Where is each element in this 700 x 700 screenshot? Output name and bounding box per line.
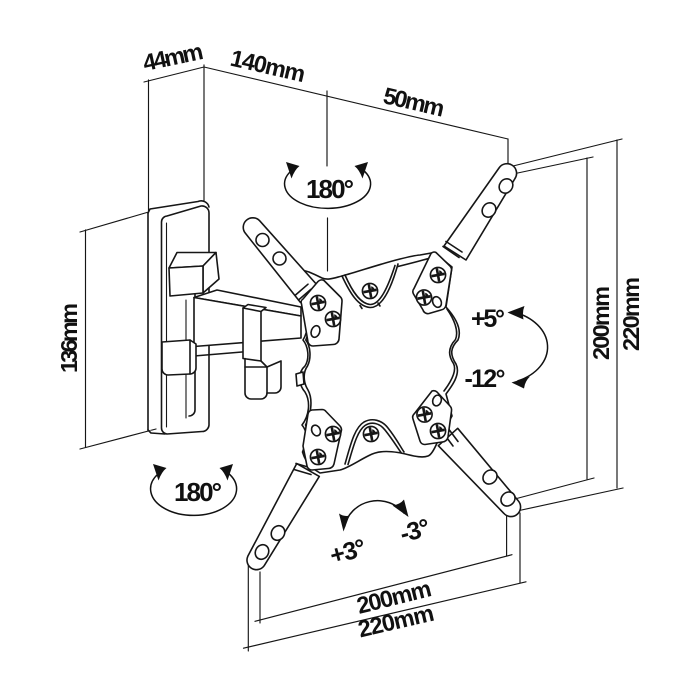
svg-text:+3°: +3°	[327, 534, 369, 570]
svg-text:200mm: 200mm	[588, 286, 614, 360]
svg-text:-12°: -12°	[465, 365, 506, 393]
svg-text:-3°: -3°	[397, 514, 433, 549]
svg-text:180°: 180°	[174, 477, 222, 507]
svg-text:220mm: 220mm	[618, 277, 644, 351]
svg-text:140mm: 140mm	[228, 45, 308, 87]
svg-text:+5°: +5°	[471, 305, 505, 333]
svg-text:44mm: 44mm	[140, 38, 205, 76]
svg-text:50mm: 50mm	[381, 82, 447, 121]
svg-text:136mm: 136mm	[56, 303, 82, 373]
svg-text:180°: 180°	[306, 174, 354, 204]
